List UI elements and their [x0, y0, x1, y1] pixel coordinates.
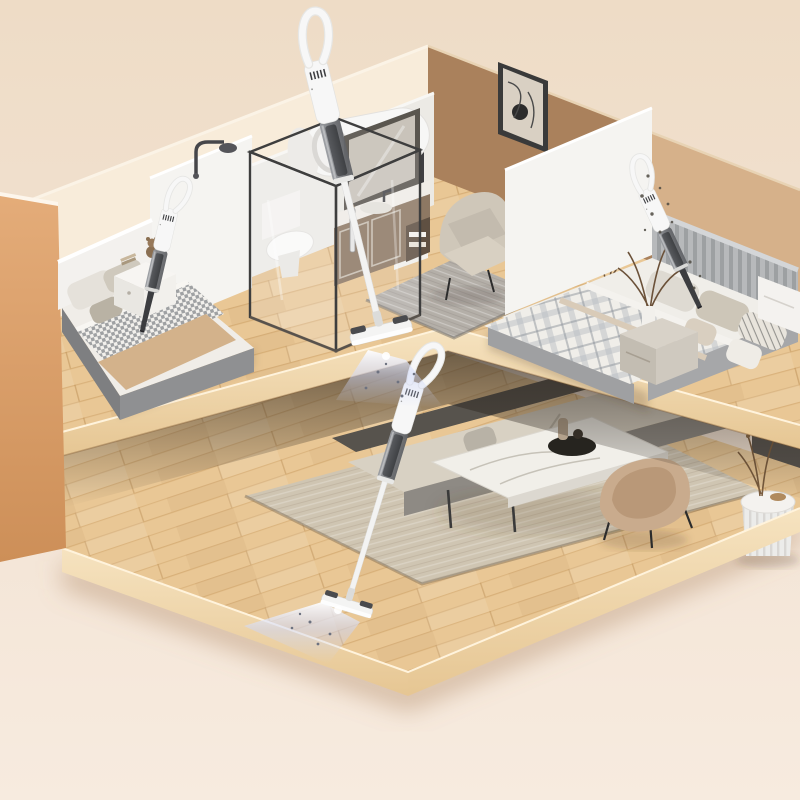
chair-shadow [600, 530, 688, 550]
beam-glow [382, 352, 390, 360]
shower-head [219, 143, 237, 153]
outer-tan-wall [0, 196, 66, 562]
beam-glow [334, 606, 342, 614]
armchair-shadow [430, 287, 506, 305]
isometric-home-illustration: Isometric cutaway render of a two-level … [0, 0, 800, 800]
drawer-knob [127, 291, 131, 295]
wall-plate [193, 173, 199, 179]
decor-bowl [770, 493, 786, 501]
product-render-scene: Isometric cutaway render of a two-level … [0, 0, 800, 800]
